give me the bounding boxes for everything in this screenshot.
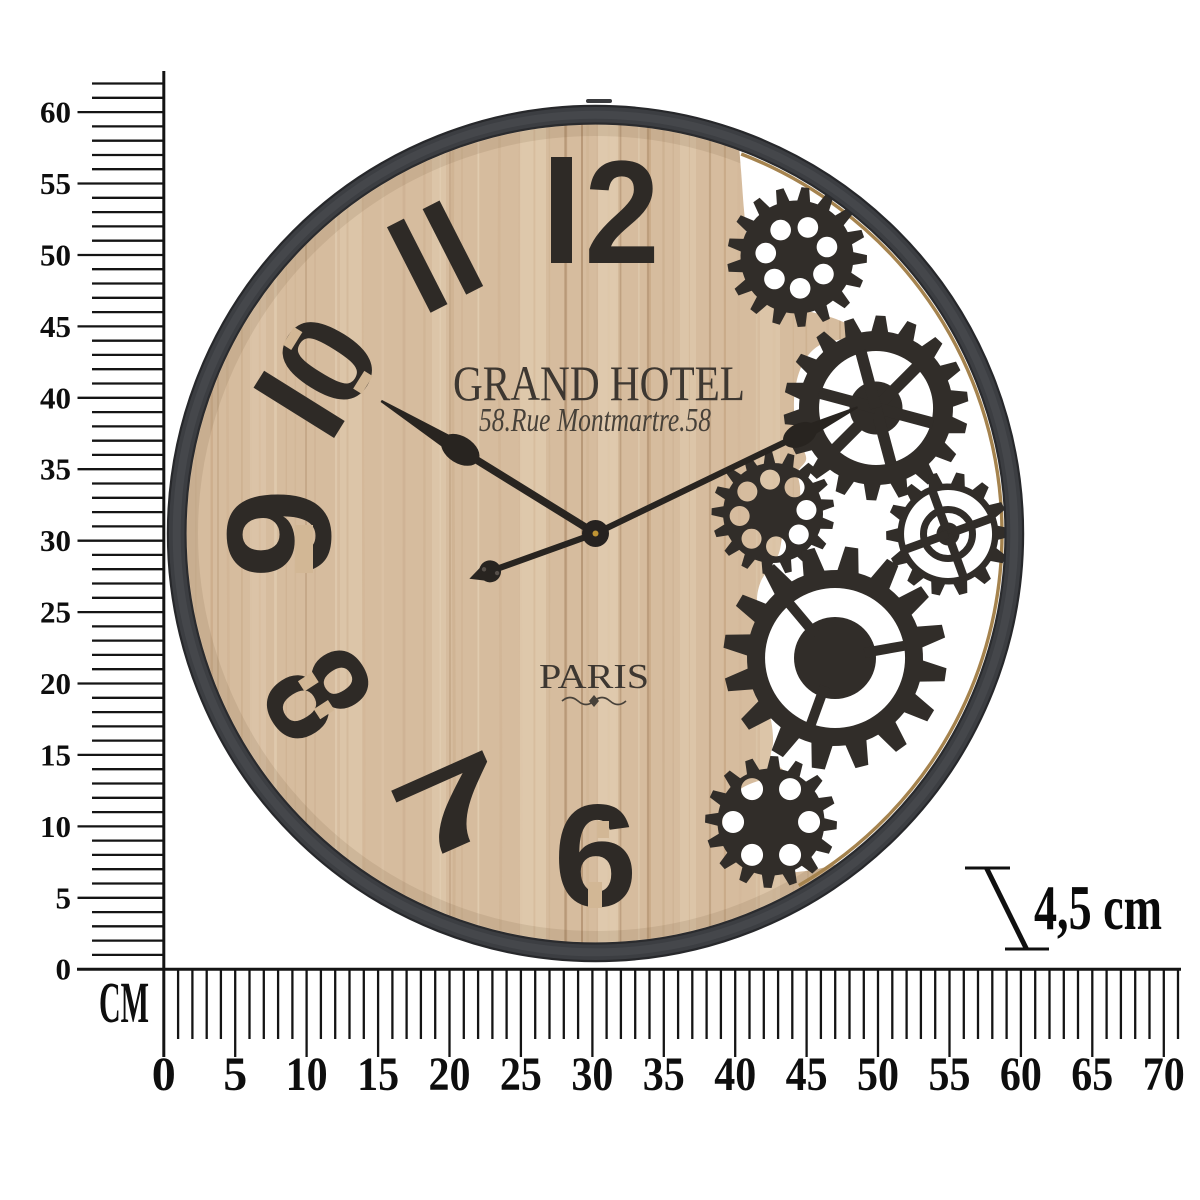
svg-text:5: 5 — [223, 1048, 247, 1101]
svg-text:50: 50 — [857, 1048, 899, 1101]
svg-text:25: 25 — [40, 595, 71, 630]
svg-text:60: 60 — [40, 95, 71, 130]
svg-text:70: 70 — [1143, 1048, 1185, 1101]
svg-text:10: 10 — [286, 1048, 328, 1101]
svg-text:CM: CM — [99, 970, 149, 1035]
svg-text:65: 65 — [1071, 1048, 1113, 1101]
svg-text:10: 10 — [40, 809, 71, 844]
svg-text:6: 6 — [554, 774, 638, 937]
svg-text:30: 30 — [571, 1048, 613, 1101]
svg-text:40: 40 — [714, 1048, 756, 1101]
svg-text:4,5 cm: 4,5 cm — [1034, 872, 1162, 943]
svg-text:30: 30 — [40, 523, 71, 558]
svg-text:5: 5 — [56, 880, 72, 915]
svg-text:35: 35 — [643, 1048, 685, 1101]
svg-text:58.Rue Montmartre.58: 58.Rue Montmartre.58 — [479, 402, 711, 439]
svg-text:0: 0 — [152, 1048, 176, 1101]
svg-text:PARIS: PARIS — [539, 657, 649, 696]
svg-text:15: 15 — [357, 1048, 399, 1101]
svg-text:35: 35 — [40, 452, 71, 487]
svg-text:20: 20 — [40, 666, 71, 701]
svg-text:0: 0 — [56, 952, 72, 987]
svg-text:40: 40 — [40, 380, 71, 415]
svg-text:25: 25 — [500, 1048, 542, 1101]
svg-text:9: 9 — [197, 489, 362, 579]
svg-text:20: 20 — [429, 1048, 471, 1101]
svg-text:55: 55 — [929, 1048, 971, 1101]
svg-text:2: 2 — [585, 131, 660, 295]
svg-text:50: 50 — [40, 238, 71, 273]
svg-text:60: 60 — [1000, 1048, 1042, 1101]
svg-text:15: 15 — [40, 737, 71, 772]
svg-text:45: 45 — [40, 309, 71, 344]
svg-text:55: 55 — [40, 166, 71, 201]
svg-text:45: 45 — [786, 1048, 828, 1101]
